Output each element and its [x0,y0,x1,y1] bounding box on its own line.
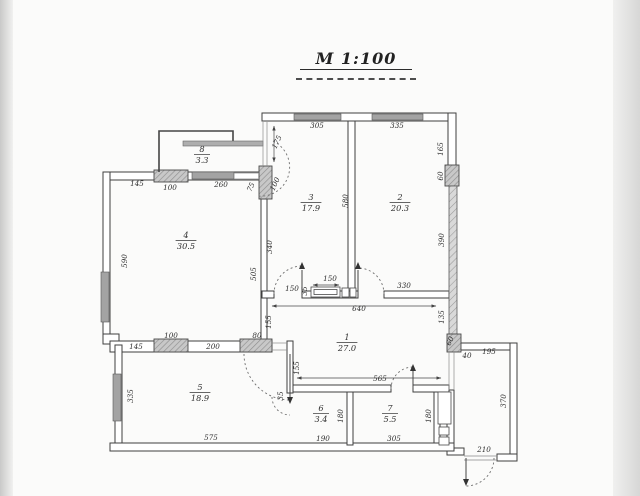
dimension-label: 155 [292,361,301,375]
dimension-lines [272,126,441,378]
room-number: 4 [182,230,188,240]
room-number: 6 [318,403,323,413]
dimension-label: 190 [316,434,330,443]
dimension-label: 180 [336,409,345,423]
dimension-label: 60 [436,171,445,181]
dimension-label: 145 [129,342,143,351]
wardrobe [311,287,356,297]
room-area: 3.3 [195,155,208,165]
room-area: 17.9 [302,203,320,213]
room-area: 3.4 [314,414,327,424]
dimension-label: 145 [130,179,144,188]
balcony-outline [159,131,263,172]
dimension-label: 565 [373,374,387,383]
dimension-label: 150 [285,284,299,293]
dimension-label: 100 [164,331,178,340]
dimension-label: 75 [245,181,257,193]
dimension-label: 35 [276,391,285,401]
room-number: 2 [396,192,402,202]
dimension-label: 335 [390,121,404,130]
room-number: 1 [344,332,349,342]
dimension-label: 340 [265,240,274,254]
room2-door-arc [358,268,384,294]
dimension-label: 200 [205,342,220,351]
room-area: 30.5 [177,241,195,251]
dimension-label: 180 [424,409,433,423]
dimension-label: 590 [120,254,129,268]
floor-plan-drawing: 3053351656039013560401953702101451002601… [0,0,640,496]
floorplan-page: { "title": { "scale_label": "М 1:100" },… [0,0,640,496]
dimension-label: 575 [204,433,218,442]
room-area: 20.3 [390,203,409,213]
dimension-label: 210 [476,445,491,454]
room-area: 18.9 [191,393,209,403]
room-number: 5 [197,382,202,392]
dimension-label: 390 [437,233,446,247]
dimension-label: 260 [213,180,228,189]
dimension-label: 370 [499,394,508,408]
dimension-label: 165 [436,142,445,156]
dimension-label: 335 [126,389,135,403]
dimension-label: 150 [323,274,337,283]
room-area: 5.5 [383,414,396,424]
room-area: 27.0 [337,343,356,353]
dimension-label: 330 [397,281,411,290]
dimension-label: 195 [482,347,496,356]
dimension-label: 40 [461,351,472,360]
dimension-label: 580 [341,194,350,208]
dimension-label: 305 [387,434,401,443]
dimension-label: 505 [249,267,258,281]
dimension-label: 100 [163,183,177,192]
service-shaft [438,392,451,445]
dimension-label: 80 [252,331,262,340]
room-number: 7 [387,403,393,413]
dimension-label: 155 [264,315,273,329]
dimension-label: 135 [437,310,446,324]
entrance-door-arc [466,458,494,486]
dimension-label: 35 [300,286,309,296]
room-number: 8 [199,144,204,154]
room-number: 3 [308,192,313,202]
dimension-label: 640 [352,304,366,313]
dimension-label: 305 [310,121,324,130]
